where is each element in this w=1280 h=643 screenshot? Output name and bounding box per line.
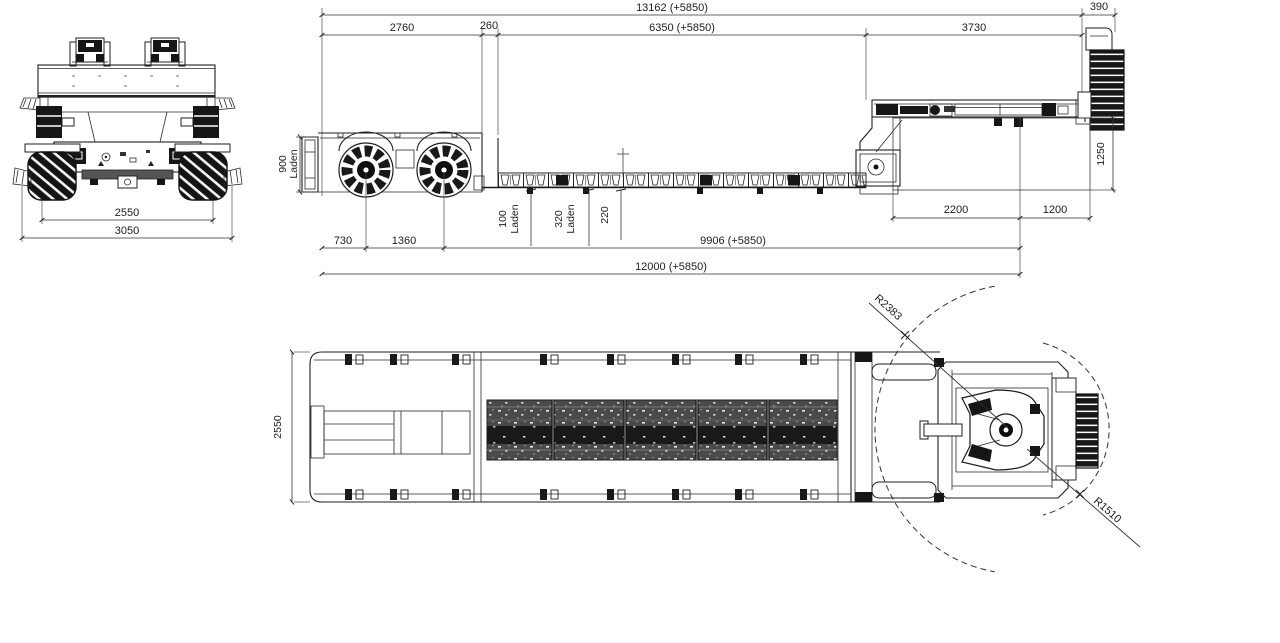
dim-overall-width: 3050 [115, 225, 139, 237]
dim-rear-to-kingpin: 12000 (+5850) [635, 261, 707, 273]
label-rear-swing-radius: R2383 [872, 292, 904, 323]
twistlock-pedestal-left [70, 38, 110, 66]
dim-rear-module: 2760 [390, 22, 414, 34]
dim-220: 220 [599, 206, 611, 224]
dim-gooseneck-length: 3730 [962, 22, 986, 34]
suspension-left [36, 106, 62, 138]
dim-gooseneck-clearance: 1250 [1095, 142, 1107, 166]
tire-right [179, 152, 227, 200]
dim-100: 100 [497, 210, 509, 228]
axle-stub-left [62, 118, 74, 126]
dim-rear-height: 900 Laden [277, 137, 318, 192]
rear-dim-2550: 2550 [42, 200, 213, 224]
fender-left [25, 144, 80, 152]
dim-overall-length: 13162 (+5850) [636, 2, 708, 14]
dim-clearance-length: 2200 [944, 204, 968, 216]
top-view: R2383 R1510 2550 [272, 286, 1140, 572]
axle-stub-right [181, 118, 193, 126]
kingpin-stub-2 [1014, 117, 1023, 127]
tow-coupling [118, 176, 137, 188]
spare-wheel-side [1078, 28, 1124, 130]
dim-kingpin-to-front: 1200 [1043, 204, 1067, 216]
suspension-right [193, 106, 219, 138]
dim-step-gap: 260 [480, 20, 498, 32]
gooseneck-side [856, 100, 1090, 194]
label-front-swing-radius: R1510 [1091, 495, 1123, 525]
well-deck [482, 138, 866, 194]
rear-plate [302, 137, 318, 192]
dim-320-note: Laden [565, 204, 577, 233]
fifth-wheel-coupler [920, 390, 1044, 470]
dim-320: 320 [553, 210, 565, 228]
top-dim-2550: 2550 [272, 352, 310, 502]
dim-deck-width: 2550 [272, 415, 284, 439]
spare-wheel-top [1052, 378, 1098, 480]
rear-deck-beam [38, 65, 215, 98]
dim-100-note: Laden [509, 204, 521, 233]
clearance-box: 1250 2200 1200 [893, 117, 1116, 278]
center-spine [311, 406, 470, 458]
trailer-dimensional-drawing: 2550 3050 13162 (+5850) 390 2760 [0, 0, 1280, 643]
dim-axle-to-kingpin: 9906 (+5850) [700, 235, 766, 247]
checker-plate-strip [487, 400, 837, 460]
dims-mid-heights: 100 Laden 320 Laden 220 [497, 189, 626, 246]
dim-axle-spacing: 1360 [392, 235, 416, 247]
drawing-svg: 2550 3050 13162 (+5850) 390 2760 [0, 0, 1280, 643]
tire-left [28, 152, 76, 200]
fender-right [175, 144, 230, 152]
twistlock-pedestal-right [145, 38, 185, 66]
rear-view: 2550 3050 [13, 38, 242, 242]
dim-rear-overhang: 730 [334, 235, 352, 247]
dim-spare-overhang: 390 [1090, 1, 1108, 13]
dim-900-note: Laden [288, 149, 300, 178]
dim-track-width: 2550 [115, 207, 139, 219]
side-view: 13162 (+5850) 390 2760 260 6350 (+5850) … [277, 1, 1124, 278]
dim-well-length: 6350 (+5850) [649, 22, 715, 34]
